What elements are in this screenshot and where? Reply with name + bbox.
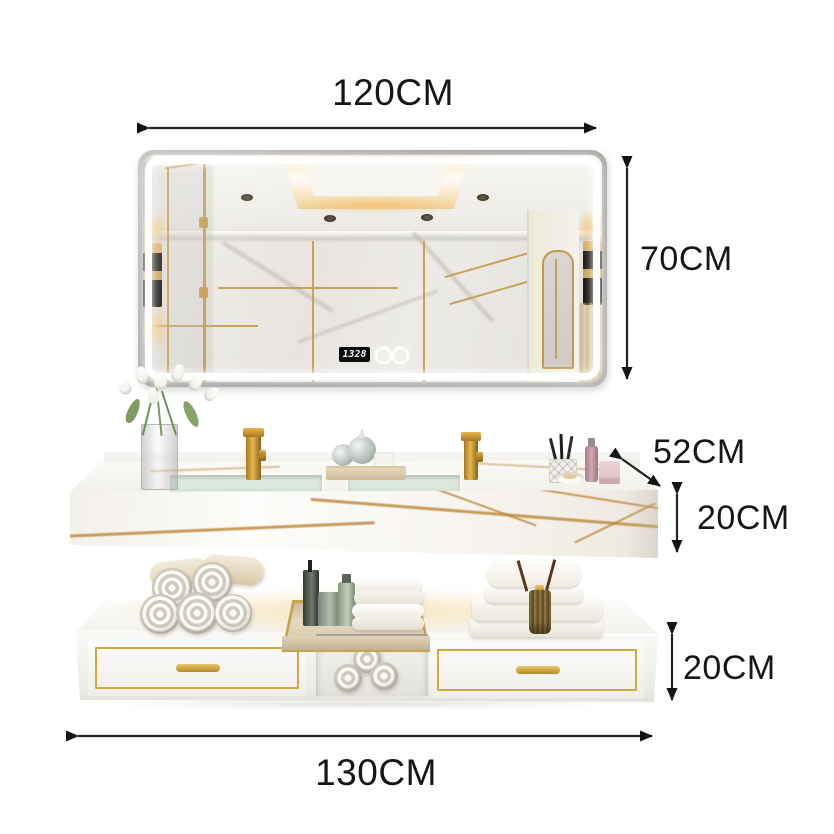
perfume-sphere [348, 436, 376, 464]
drawer-handle [516, 666, 560, 674]
drawer-handle [176, 664, 220, 672]
towel-roll [370, 662, 398, 690]
dimension-label-counter-height: 20CM [697, 499, 790, 538]
cabinet-tray-front [282, 636, 430, 652]
towel-roll [140, 594, 180, 634]
dimension-label-counter-depth: 52CM [653, 433, 746, 472]
faucet-left-handle [259, 450, 266, 461]
dimension-label-mirror-height: 70CM [640, 240, 733, 279]
folded-towel [352, 617, 424, 630]
amenity-bottle-pump [308, 560, 312, 572]
spray-bottle [585, 446, 598, 482]
amenity-bottle-dark [303, 570, 319, 626]
amenity-bottle-cap [342, 574, 351, 583]
trinket-bowl-gold [563, 474, 577, 479]
faucet-left-spout [243, 428, 264, 437]
flower-leaf [123, 397, 143, 425]
mirror-sheen [143, 155, 602, 382]
mirror-reflection-scene: 1328 [143, 155, 602, 382]
faucet-right-handle [476, 452, 483, 462]
counter-tray [326, 466, 406, 480]
drawer-left [88, 640, 306, 696]
counter-front-face [70, 488, 658, 560]
tassel-skirt [529, 590, 551, 634]
folded-towel [356, 578, 422, 592]
perfume-cap [358, 428, 366, 438]
drawer-right [430, 642, 644, 698]
folded-towel [354, 591, 424, 605]
folded-towel [487, 560, 581, 587]
towel-roll [214, 594, 252, 632]
led-mirror: 1328 [138, 150, 607, 387]
dimension-label-cabinet-width: 130CM [315, 752, 437, 794]
marble-vein [65, 521, 375, 537]
calla-lily-bloom [115, 376, 134, 397]
spray-bottle-cap [588, 438, 595, 447]
dimension-label-mirror-width: 120CM [332, 72, 454, 114]
dimension-label-cabinet-height: 20CM [683, 649, 776, 688]
faucet-right-spout [461, 432, 481, 441]
flower-leaf [180, 399, 201, 429]
cosmetic-box [599, 461, 620, 484]
folded-towel [352, 604, 424, 618]
towel-roll [176, 592, 218, 634]
towel-roll [334, 664, 362, 692]
counter-side-shade [624, 488, 658, 560]
vanity-dimension-diagram: 1328 [0, 0, 834, 834]
amenity-jar-green [318, 592, 340, 626]
calla-lily-bloom [202, 385, 221, 404]
